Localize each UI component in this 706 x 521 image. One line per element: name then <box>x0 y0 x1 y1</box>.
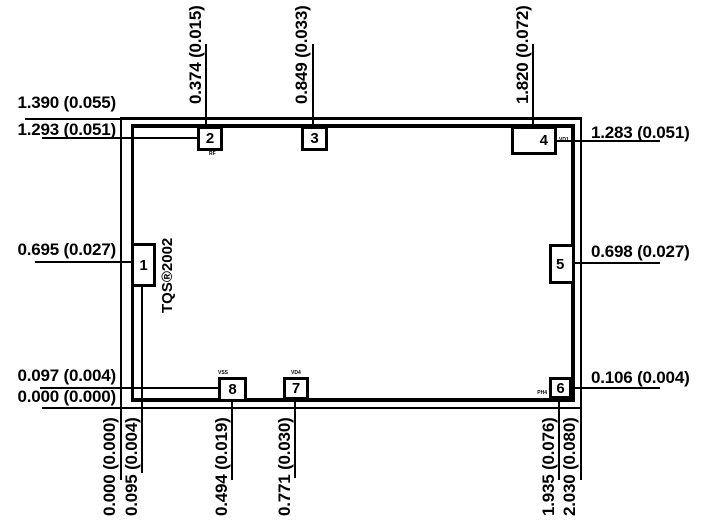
pad-4-number: 4 <box>540 132 548 149</box>
leader-line-0374 <box>205 44 207 126</box>
dim-top-0849: 0.849 (0.033) <box>293 5 310 104</box>
pin-name-label-pad2: RF <box>209 151 216 157</box>
dim-top-0374: 0.374 (0.015) <box>187 5 204 104</box>
dim-right-0698: 0.698 (0.027) <box>591 243 690 261</box>
pad-2: 2 <box>197 126 223 151</box>
dim-left-0000: 0.000 (0.000) <box>0 388 116 406</box>
dim-right-1283: 1.283 (0.051) <box>591 124 690 142</box>
dim-right-0106: 0.106 (0.004) <box>591 369 690 387</box>
pad-1: 1 <box>131 243 156 287</box>
pad-3: 3 <box>301 126 328 151</box>
leader-line-1820 <box>532 44 534 126</box>
brand-text: TQS®2002 <box>159 238 176 313</box>
leader-line-0695 <box>35 261 131 263</box>
pad-6: 6 <box>549 377 572 399</box>
pad-8: 8 <box>218 377 247 402</box>
dim-bottom-0000: 0.000 (0.000) <box>101 417 118 516</box>
dim-left-1390: 1.390 (0.055) <box>0 94 116 112</box>
dim-bottom-1935: 1.935 (0.076) <box>540 417 557 516</box>
pad-1-number: 1 <box>139 257 147 274</box>
leader-line-2030 <box>580 409 582 480</box>
dim-top-1820: 1.820 (0.072) <box>514 5 531 104</box>
pad-4: 4 <box>511 126 557 155</box>
pad-5-number: 5 <box>556 256 564 273</box>
dim-left-0097: 0.097 (0.004) <box>0 367 116 385</box>
leader-line-0849 <box>312 44 314 126</box>
pad-7: 7 <box>283 377 309 400</box>
leader-line-0771 <box>294 400 296 478</box>
pad-5: 5 <box>549 244 575 284</box>
leader-line-0494 <box>231 402 233 480</box>
pad-7-number: 7 <box>292 380 300 397</box>
pad-2-number: 2 <box>206 130 214 147</box>
pad-8-number: 8 <box>228 381 236 398</box>
dim-bottom-0494: 0.494 (0.019) <box>213 417 230 516</box>
leader-line-0095 <box>141 284 143 473</box>
pad-3-number: 3 <box>310 130 318 147</box>
pin-name-label-pad7: VD4 <box>291 370 301 376</box>
leader-line-0106 <box>572 387 660 389</box>
inner-outline-rect <box>131 124 575 402</box>
dim-bottom-0771: 0.771 (0.030) <box>276 417 293 516</box>
dim-bottom-2030: 2.030 (0.080) <box>561 417 578 516</box>
dim-left-1293: 1.293 (0.051) <box>0 121 116 139</box>
pin-name-label-pad3: VSS <box>329 124 339 130</box>
dim-bottom-0095: 0.095 (0.004) <box>123 417 140 516</box>
leader-line-0698 <box>575 262 660 264</box>
leader-line-0000-left <box>42 407 121 409</box>
pin-name-label-pad8: VSS <box>218 370 228 376</box>
pin-name-label-pad4: VD1 <box>559 137 569 143</box>
dim-left-0695: 0.695 (0.027) <box>0 241 116 259</box>
pad-6-number: 6 <box>556 380 564 397</box>
pin-name-label-pad6: PH4 <box>525 390 547 396</box>
die-outline-drawing: TQS®2002 1 2 3 4 5 6 7 8 RF VSS VD1 PH4 … <box>0 0 706 521</box>
